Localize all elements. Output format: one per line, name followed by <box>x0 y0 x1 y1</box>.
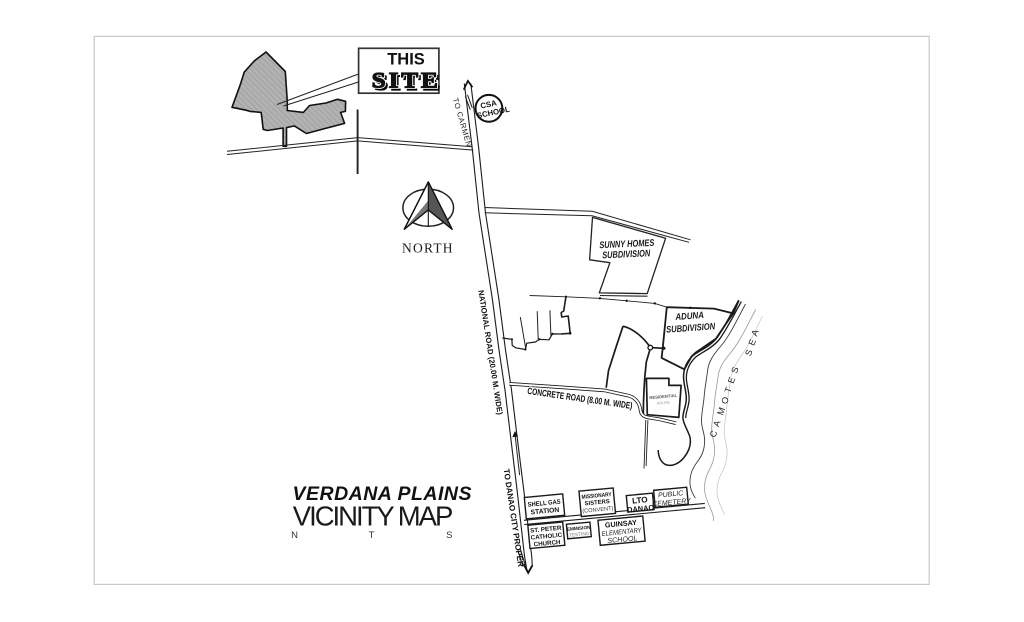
svg-text:SUBDIVISION: SUBDIVISION <box>602 248 651 261</box>
svg-text:ADUNA: ADUNA <box>674 309 704 322</box>
svg-text:SITE: SITE <box>372 67 441 92</box>
svg-text:THIS: THIS <box>387 51 425 69</box>
svg-text:N: N <box>291 530 298 541</box>
svg-text:NORTH: NORTH <box>402 241 454 256</box>
svg-text:T: T <box>369 530 375 541</box>
svg-text:S: S <box>446 530 452 541</box>
svg-text:VICINITY MAP: VICINITY MAP <box>293 500 454 531</box>
